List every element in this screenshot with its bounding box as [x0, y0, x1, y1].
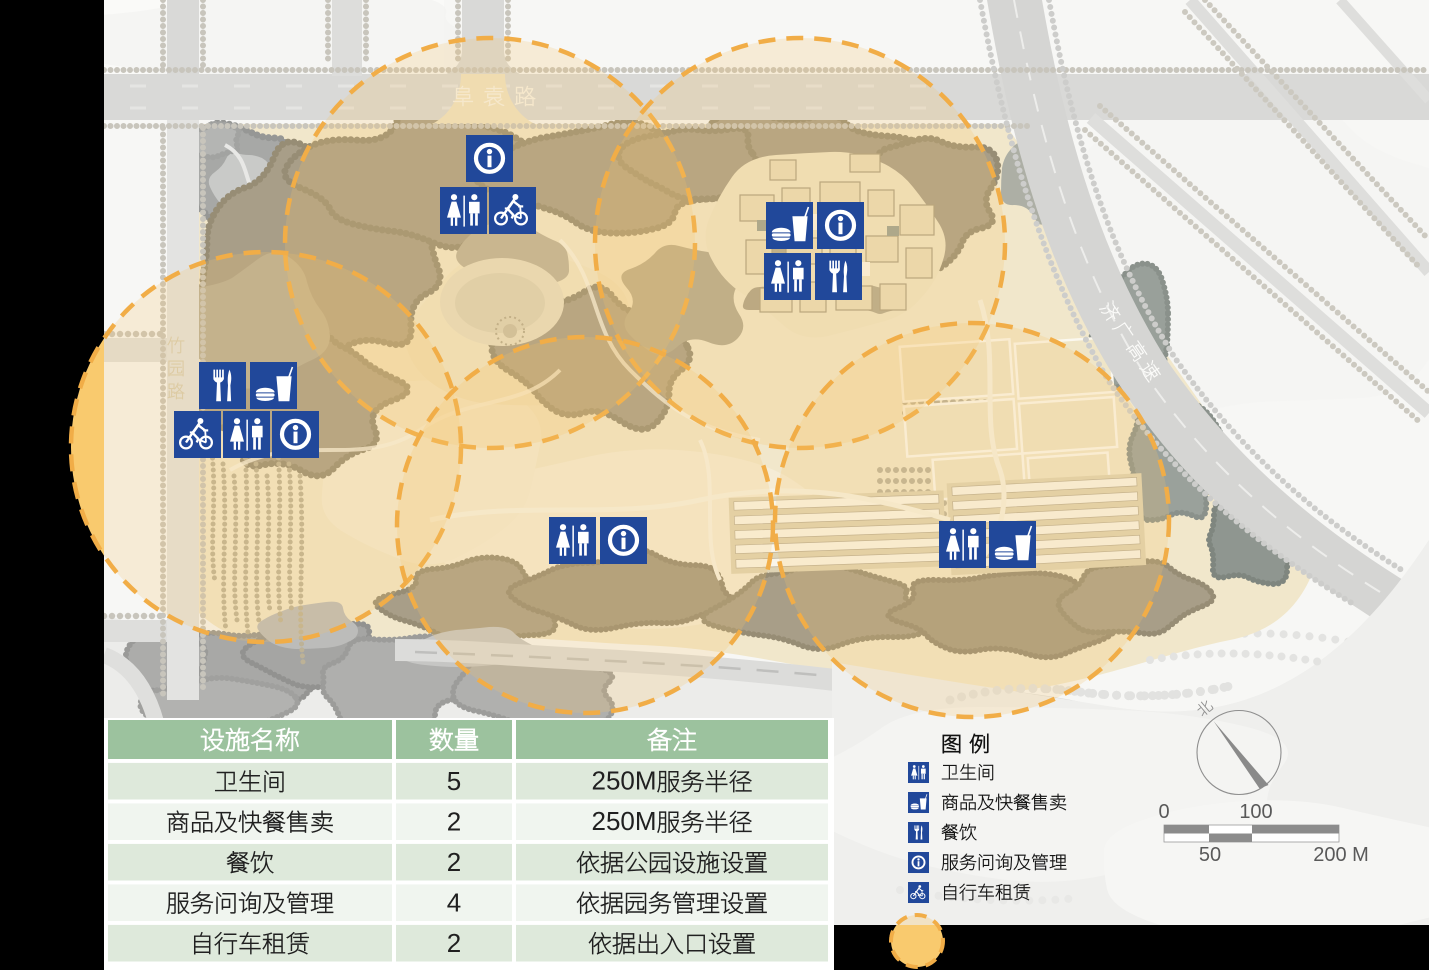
svg-text:2: 2: [447, 928, 461, 958]
svg-text:2: 2: [447, 807, 461, 837]
svg-text:0: 0: [1158, 801, 1169, 823]
svg-text:250M: 250M: [592, 806, 657, 836]
svg-text:5: 5: [447, 766, 461, 796]
svg-text:250M: 250M: [592, 766, 657, 796]
svg-text:2: 2: [447, 847, 461, 877]
svg-text:200 M: 200 M: [1313, 844, 1369, 866]
svg-text:50: 50: [1199, 844, 1221, 866]
svg-text:100: 100: [1239, 801, 1272, 823]
svg-text:4: 4: [447, 888, 461, 918]
